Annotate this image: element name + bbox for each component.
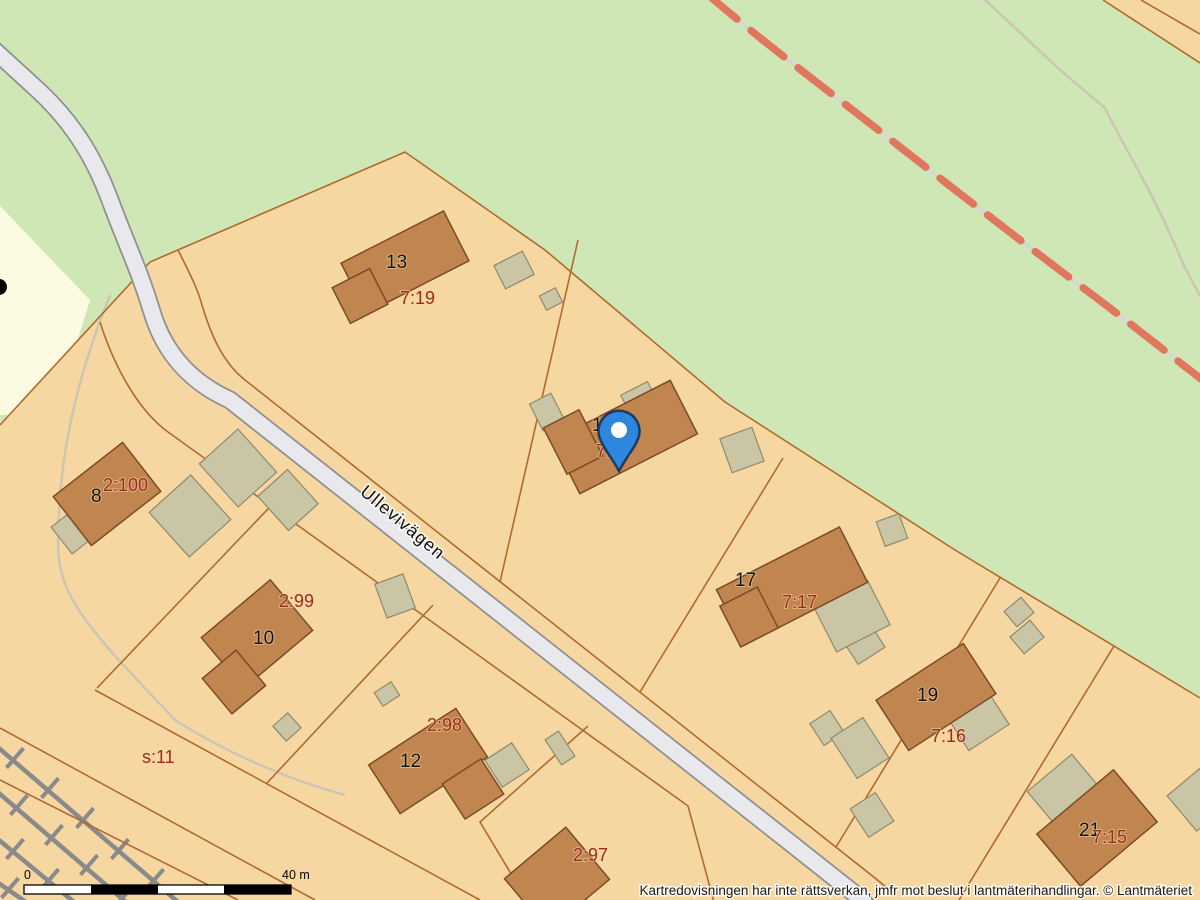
house-number-label: 19 <box>917 685 938 706</box>
house-number-label: 17 <box>735 570 756 591</box>
attribution-text: Kartredovisningen har inte rättsverkan, … <box>640 883 1193 898</box>
parcel-id-label: 7:19 <box>400 288 435 308</box>
parcel-id-label: 2:97 <box>573 845 608 865</box>
scale-start-label: 0 <box>24 868 31 882</box>
scale-end-label: 40 m <box>282 868 310 882</box>
parcel-id-label: 7:15 <box>1092 827 1127 847</box>
parcel-id-label: 2:98 <box>427 715 462 735</box>
parcel-id-label: 2:100 <box>103 475 148 495</box>
parcel-id-label: s:11 <box>142 747 175 767</box>
house-number-label: 10 <box>253 628 274 649</box>
parcel-id-label: 2:99 <box>279 591 314 611</box>
house-number-label: 12 <box>400 751 421 772</box>
cadastral-map[interactable]: 13 7:19 15 7:18 8 2:100 10 2:99 12 2:98 … <box>0 0 1200 900</box>
parcel-id-label: 7:17 <box>782 592 817 612</box>
house-number-label: 13 <box>386 252 407 273</box>
map-canvas[interactable]: 13 7:19 15 7:18 8 2:100 10 2:99 12 2:98 … <box>0 0 1200 900</box>
parcel-id-label: 7:16 <box>931 726 966 746</box>
house-number-label: 8 <box>91 486 102 507</box>
